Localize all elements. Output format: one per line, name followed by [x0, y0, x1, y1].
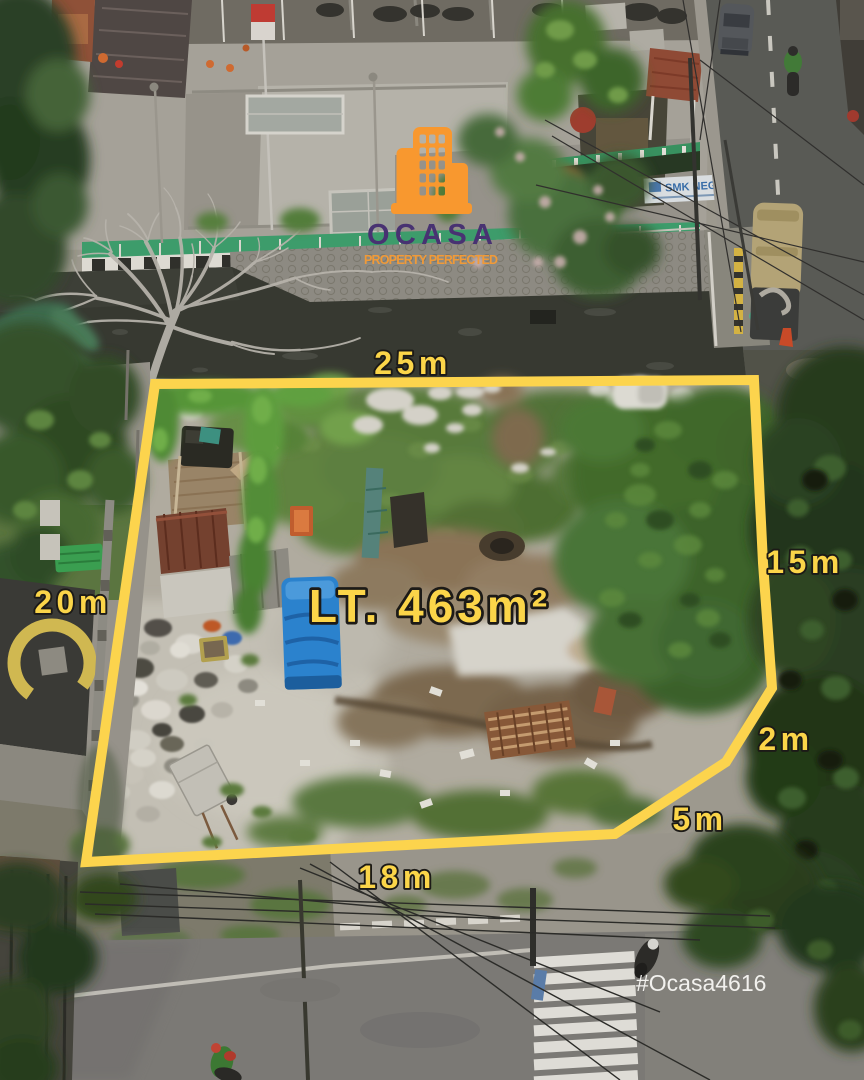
svg-text:15m: 15m [766, 544, 844, 580]
svg-text:PROPERTY PERFECTED: PROPERTY PERFECTED [364, 253, 498, 267]
svg-text:25m: 25m [374, 345, 452, 381]
svg-text:OCASA: OCASA [367, 219, 493, 251]
svg-text:#Ocasa4616: #Ocasa4616 [636, 970, 766, 996]
svg-text:2m: 2m [758, 721, 813, 757]
svg-text:18m: 18m [358, 859, 436, 895]
svg-text:20m: 20m [34, 584, 112, 620]
svg-text:LT. 463m²: LT. 463m² [309, 580, 551, 632]
svg-text:5m: 5m [672, 801, 727, 837]
